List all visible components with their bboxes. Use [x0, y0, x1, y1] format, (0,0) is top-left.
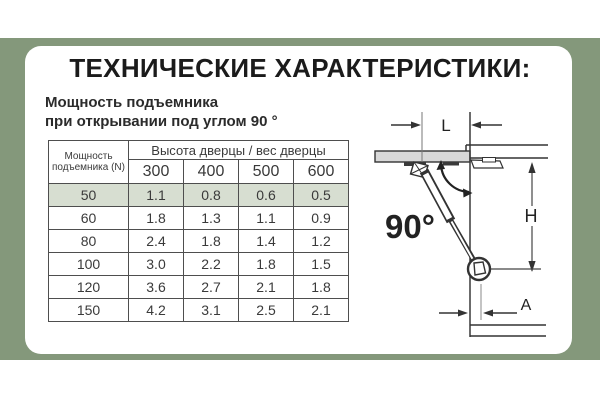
power-cell: 80 — [49, 230, 129, 253]
value-cell: 2.7 — [184, 276, 239, 299]
table-row: 501.10.80.60.5 — [49, 184, 349, 207]
angle-label: 90° — [385, 208, 435, 245]
power-cell: 60 — [49, 207, 129, 230]
page-title: ТЕХНИЧЕСКИЕ ХАРАКТЕРИСТИКИ: — [0, 53, 600, 84]
page: ТЕХНИЧЕСКИЕ ХАРАКТЕРИСТИКИ: Мощность под… — [0, 0, 600, 400]
value-cell: 3.6 — [129, 276, 184, 299]
l-arrow-right-icon — [411, 122, 421, 129]
power-cell: 50 — [49, 184, 129, 207]
table-row: 1003.02.21.81.5 — [49, 253, 349, 276]
value-cell: 2.5 — [239, 299, 294, 322]
value-cell: 1.1 — [129, 184, 184, 207]
l-dimension-label: L — [441, 116, 450, 135]
cabinet-top-panel — [466, 145, 548, 158]
table-caption-line2: при открывании под углом 90 ° — [45, 112, 278, 131]
column-header: 500 — [239, 160, 294, 184]
hinge-notch — [483, 158, 496, 163]
value-cell: 1.8 — [294, 276, 349, 299]
value-cell: 0.6 — [239, 184, 294, 207]
power-cell: 100 — [49, 253, 129, 276]
table-row: 601.81.31.10.9 — [49, 207, 349, 230]
power-cell: 120 — [49, 276, 129, 299]
table-caption-line1: Мощность подъемника — [45, 93, 278, 112]
height-weight-header: Высота дверцы / вес дверцы — [129, 141, 349, 160]
power-column-header: Мощность подъемника (N) — [49, 141, 129, 184]
value-cell: 0.9 — [294, 207, 349, 230]
value-cell: 1.5 — [294, 253, 349, 276]
value-cell: 1.8 — [184, 230, 239, 253]
a-dimension-label: A — [521, 297, 532, 314]
l-arrow-left-icon — [471, 122, 481, 129]
value-cell: 2.2 — [184, 253, 239, 276]
column-header: 300 — [129, 160, 184, 184]
door-mount-plate-right — [443, 162, 459, 166]
power-cell: 150 — [49, 299, 129, 322]
column-header: 400 — [184, 160, 239, 184]
value-cell: 2.4 — [129, 230, 184, 253]
value-cell: 0.8 — [184, 184, 239, 207]
value-cell: 1.2 — [294, 230, 349, 253]
column-header: 600 — [294, 160, 349, 184]
value-cell: 1.1 — [239, 207, 294, 230]
table-caption: Мощность подъемника при открывании под у… — [45, 93, 278, 131]
ball-socket-core — [474, 262, 486, 275]
swing-arc-head-bottom-icon — [463, 189, 473, 198]
swing-arc-arrow — [441, 165, 469, 192]
value-cell: 2.1 — [239, 276, 294, 299]
specs-table: Мощность подъемника (N) Высота дверцы / … — [48, 140, 349, 322]
group-header-row: Мощность подъемника (N) Высота дверцы / … — [49, 141, 349, 160]
value-cell: 3.1 — [184, 299, 239, 322]
bottom-shelf — [470, 325, 546, 336]
value-cell: 1.3 — [184, 207, 239, 230]
value-cell: 3.0 — [129, 253, 184, 276]
value-cell: 1.8 — [239, 253, 294, 276]
a-dimension — [439, 284, 517, 320]
table-row: 1504.23.12.52.1 — [49, 299, 349, 322]
h-dimension-label: H — [525, 206, 538, 226]
value-cell: 1.8 — [129, 207, 184, 230]
lifter-diagram: L 90° — [368, 103, 572, 352]
value-cell: 2.1 — [294, 299, 349, 322]
value-cell: 1.4 — [239, 230, 294, 253]
value-cell: 0.5 — [294, 184, 349, 207]
value-cell: 4.2 — [129, 299, 184, 322]
table-row: 1203.62.72.11.8 — [49, 276, 349, 299]
table-row: 802.41.81.41.2 — [49, 230, 349, 253]
